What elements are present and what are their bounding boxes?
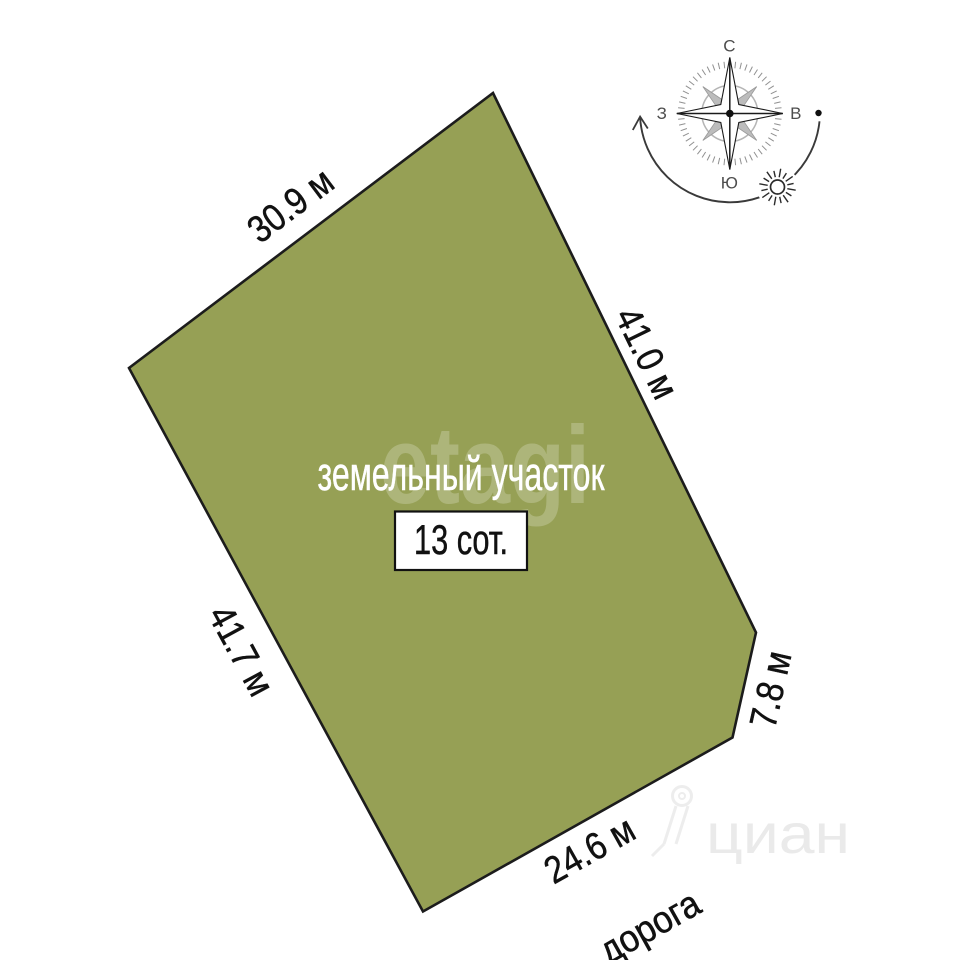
- svg-text:13 сот.: 13 сот.: [414, 516, 508, 563]
- svg-text:С: С: [723, 36, 735, 55]
- svg-text:В: В: [790, 104, 801, 123]
- svg-text:земельный участок: земельный участок: [318, 447, 605, 500]
- svg-text:Ю: Ю: [721, 174, 738, 193]
- svg-text:циан: циан: [706, 802, 850, 865]
- svg-text:З: З: [657, 104, 667, 123]
